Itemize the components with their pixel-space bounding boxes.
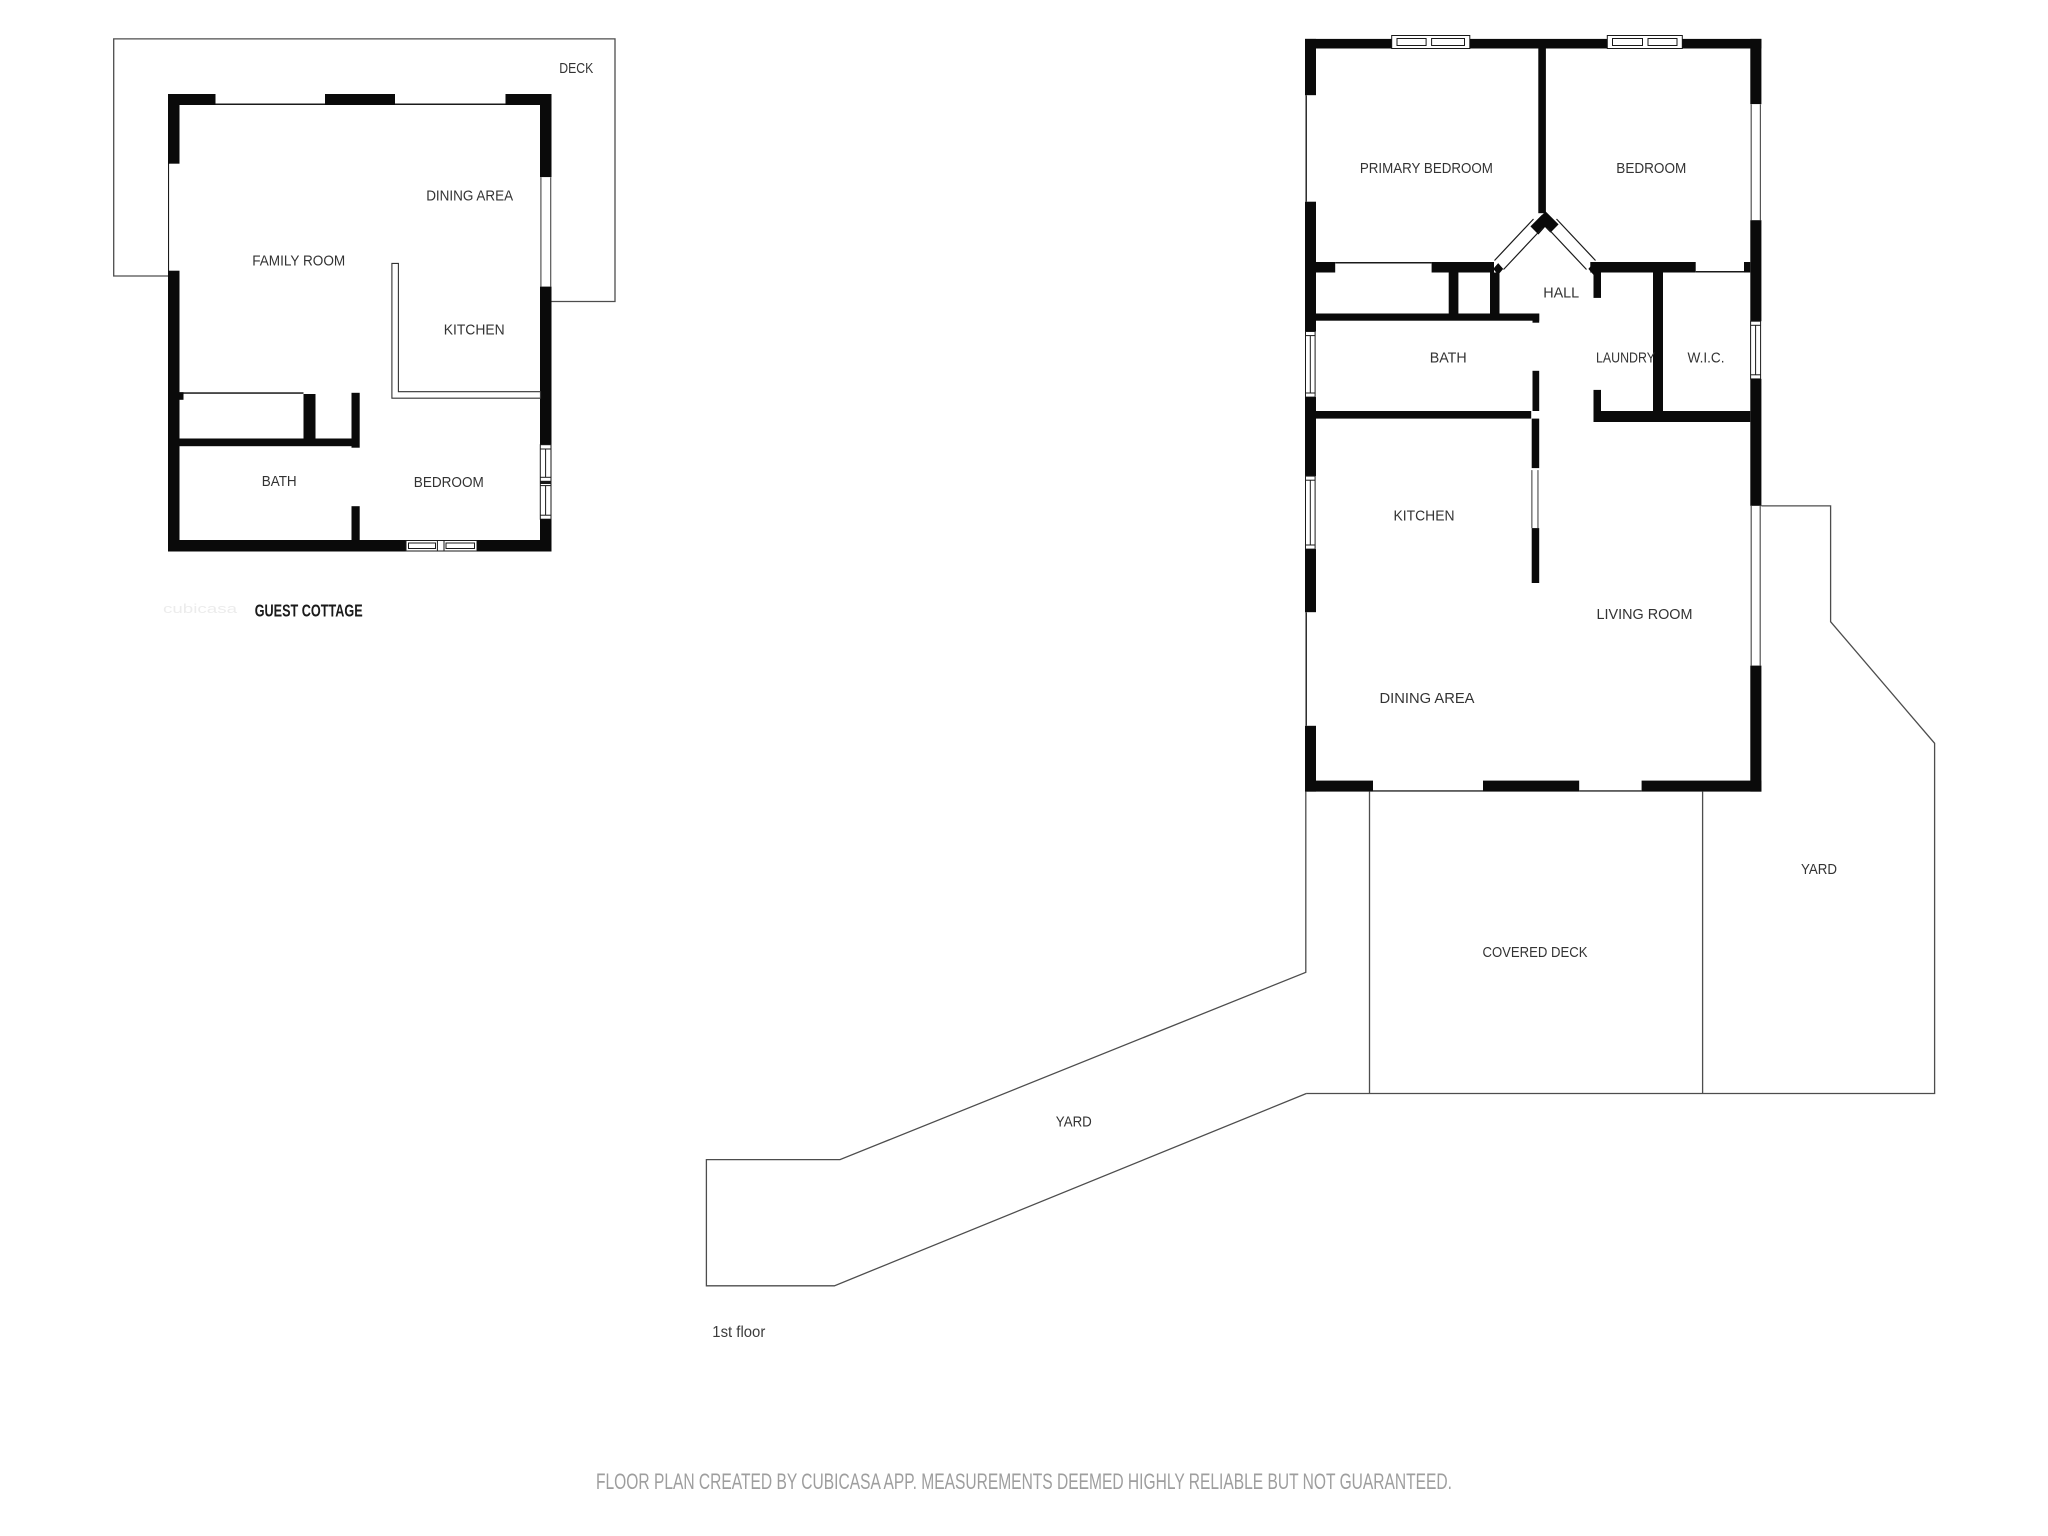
svg-text:COVERED DECK: COVERED DECK [1483, 944, 1588, 961]
svg-text:DINING AREA: DINING AREA [1380, 690, 1475, 707]
svg-text:BEDROOM: BEDROOM [1616, 160, 1686, 177]
svg-text:W.I.C.: W.I.C. [1688, 350, 1725, 367]
svg-text:DINING AREA: DINING AREA [426, 188, 513, 205]
svg-text:YARD: YARD [1056, 1114, 1092, 1131]
svg-text:YARD: YARD [1801, 861, 1837, 878]
svg-text:FLOOR PLAN CREATED BY CUBICASA: FLOOR PLAN CREATED BY CUBICASA APP. MEAS… [596, 1469, 1452, 1494]
svg-text:DECK: DECK [559, 60, 593, 77]
svg-text:HALL: HALL [1543, 285, 1579, 302]
svg-text:GUEST COTTAGE: GUEST COTTAGE [255, 600, 363, 620]
svg-text:BATH: BATH [262, 473, 297, 490]
svg-text:BATH: BATH [1430, 350, 1467, 367]
svg-text:cubicasa: cubicasa [163, 601, 238, 616]
svg-text:FAMILY ROOM: FAMILY ROOM [252, 253, 345, 270]
svg-text:1st floor: 1st floor [712, 1324, 765, 1341]
svg-text:BEDROOM: BEDROOM [414, 474, 484, 491]
svg-text:KITCHEN: KITCHEN [1394, 507, 1455, 524]
svg-text:LIVING ROOM: LIVING ROOM [1597, 606, 1693, 623]
svg-text:PRIMARY BEDROOM: PRIMARY BEDROOM [1360, 160, 1493, 177]
svg-text:KITCHEN: KITCHEN [444, 322, 505, 339]
svg-text:LAUNDRY: LAUNDRY [1596, 350, 1655, 367]
